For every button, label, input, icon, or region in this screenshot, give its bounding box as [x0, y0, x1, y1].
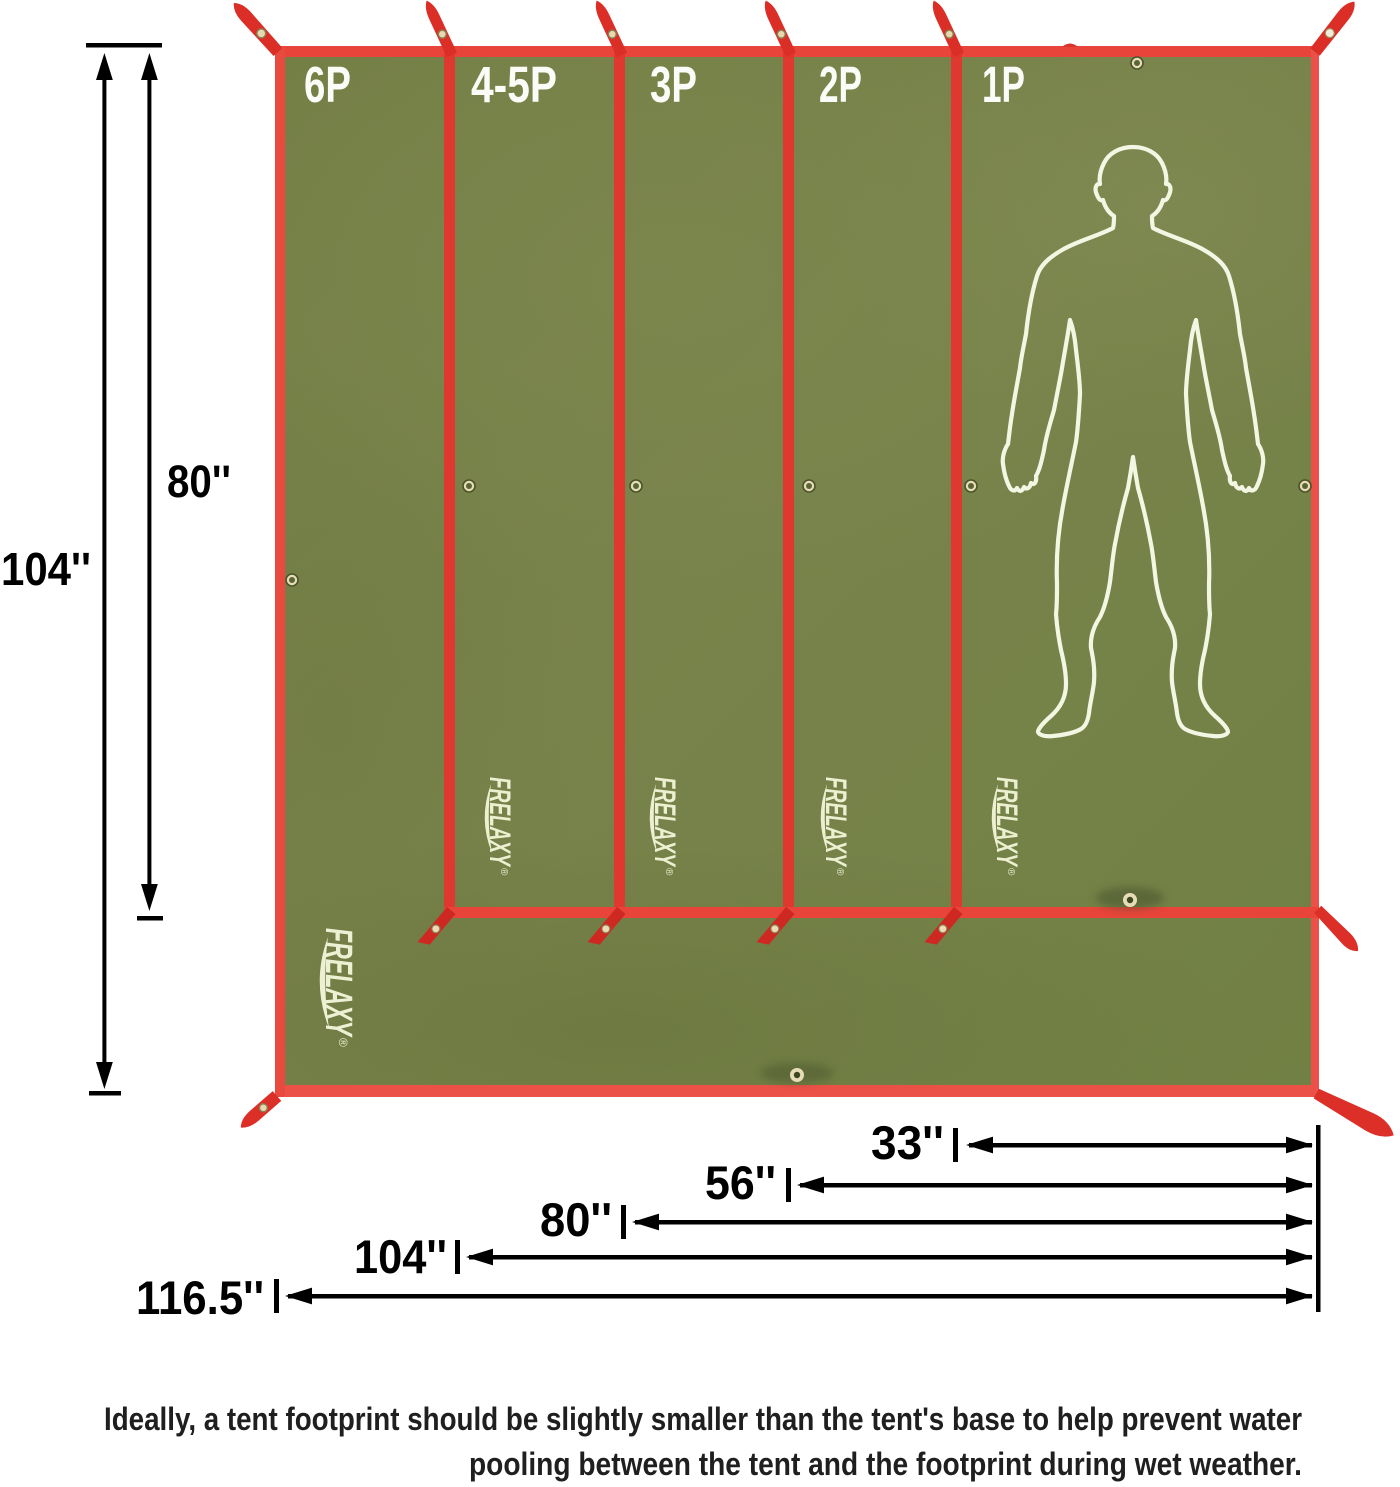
svg-text:116.5'': 116.5'' — [136, 1271, 264, 1324]
svg-text:®: ® — [498, 868, 509, 876]
svg-text:®: ® — [1005, 868, 1016, 876]
svg-text:®: ® — [336, 1038, 350, 1047]
svg-text:56'': 56'' — [705, 1156, 776, 1209]
svg-text:2P: 2P — [819, 56, 862, 113]
svg-text:80'': 80'' — [167, 456, 231, 507]
svg-text:104'': 104'' — [354, 1230, 447, 1283]
svg-text:3P: 3P — [650, 56, 697, 113]
svg-text:1P: 1P — [982, 56, 1025, 113]
svg-text:®: ® — [834, 868, 845, 876]
svg-text:4-5P: 4-5P — [471, 56, 557, 113]
svg-text:33'': 33'' — [871, 1116, 944, 1169]
svg-text:®: ® — [663, 868, 674, 876]
svg-text:104'': 104'' — [1, 543, 91, 595]
svg-text:Ideally, a tent footprint shou: Ideally, a tent footprint should be slig… — [104, 1401, 1302, 1437]
svg-text:6P: 6P — [304, 56, 351, 113]
svg-text:80'': 80'' — [540, 1193, 612, 1246]
svg-text:pooling between the tent and t: pooling between the tent and the footpri… — [469, 1446, 1302, 1482]
